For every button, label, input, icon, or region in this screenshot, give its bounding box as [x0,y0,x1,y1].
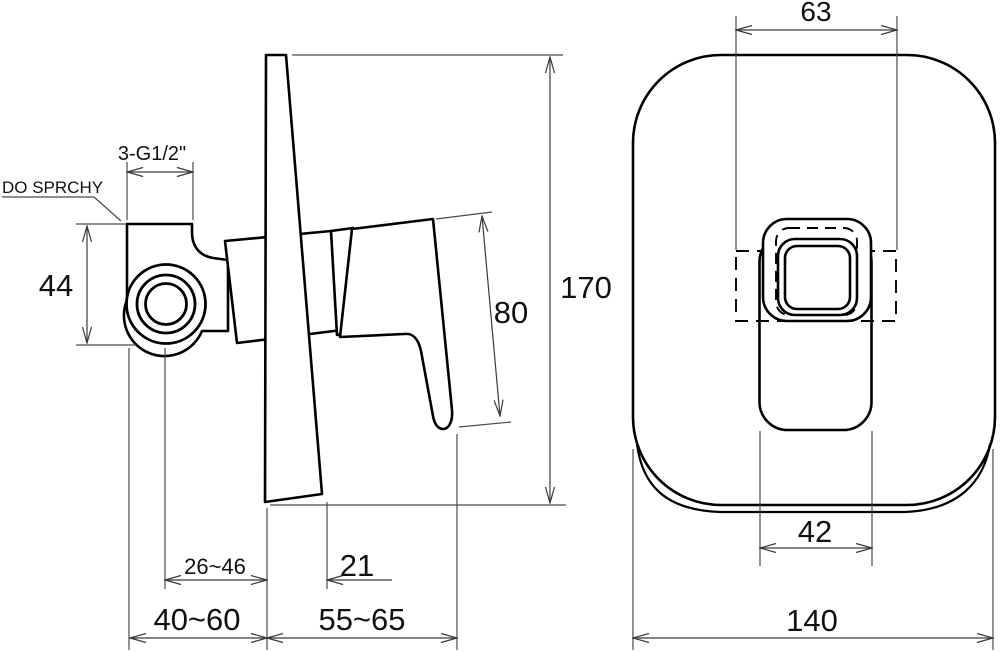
extension-line [436,212,492,219]
dim-label-40-60: 40~60 [153,602,240,637]
technical-drawing: 3-G1/2" DO SPRCHY 44 170 80 26~46 21 40~… [0,0,1000,652]
handle-side [340,219,452,429]
dim-label-42: 42 [798,514,832,549]
dim-label-170: 170 [560,270,612,305]
drawing-canvas: 3-G1/2" DO SPRCHY 44 170 80 26~46 21 40~… [0,0,1000,652]
dim-label-26-46: 26~46 [184,554,246,579]
knob-face-inner [785,246,850,309]
shower-outlet-port-inner [146,284,187,325]
front-view [633,55,995,512]
outlet-label: DO SPRCHY [2,178,103,197]
leader-line [94,197,121,221]
dim-label-140: 140 [786,603,838,638]
dim-label-thread: 3-G1/2" [118,143,186,165]
extension-line [459,422,511,427]
dim-label-63: 63 [800,0,831,27]
dim-label-55-65: 55~65 [318,602,405,637]
dim-label-21: 21 [340,548,374,583]
side-view [124,55,452,502]
dim-label-80: 80 [494,295,528,330]
dim-label-44: 44 [39,268,73,303]
